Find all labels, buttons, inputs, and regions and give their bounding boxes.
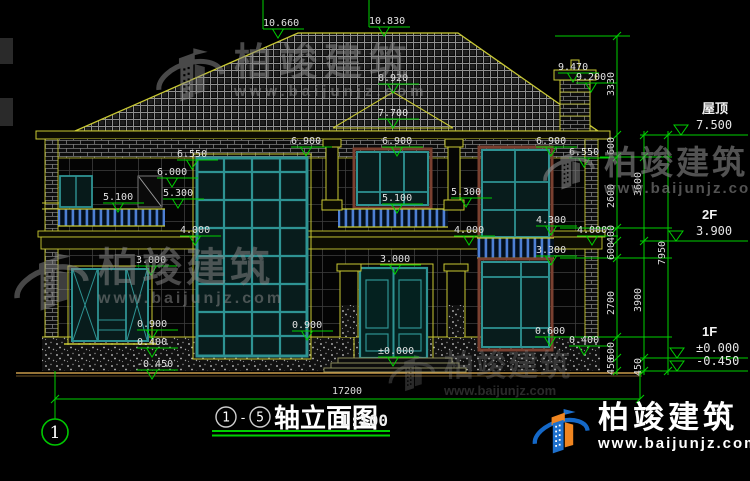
dimension-text: 2700 xyxy=(606,291,617,315)
title-block: 1 - 5 轴立面图 1:100 xyxy=(212,403,390,436)
drawing-scale: 1:100 xyxy=(340,411,388,430)
elevation-value: 10.660 xyxy=(263,18,299,29)
axis-bubble-label: 1 xyxy=(50,423,61,443)
dimension-text: 450 xyxy=(606,357,617,375)
level-value: ±0.000 xyxy=(696,341,739,355)
elevation-value: 4.000 xyxy=(180,225,210,236)
elevation-value: 5.300 xyxy=(451,187,481,198)
title-axis-start: 1 xyxy=(222,411,230,426)
dimension-text: 600 xyxy=(606,137,617,155)
title-axis-end: 5 xyxy=(256,411,264,426)
hip-roof xyxy=(75,33,598,131)
dimension-text: 2600 xyxy=(606,184,617,208)
elevation-value: 7.700 xyxy=(378,108,408,119)
elevation-value: 5.100 xyxy=(103,192,133,203)
elevation-value: 8.920 xyxy=(378,73,408,84)
elevation-value: 6.900 xyxy=(536,136,566,147)
dimension-text: 17200 xyxy=(332,386,362,397)
elevation-value: 5.100 xyxy=(382,193,412,204)
window-1f-left xyxy=(64,266,156,344)
elevation-value: 4.300 xyxy=(536,215,566,226)
dimension-text: 3600 xyxy=(633,172,644,196)
elevation-value: 6.000 xyxy=(157,167,187,178)
elevation-value: 6.550 xyxy=(569,147,599,158)
dimension-text: 7950 xyxy=(657,241,668,265)
entry-steps xyxy=(324,358,466,372)
window-2f-right xyxy=(477,147,554,258)
elevation-value: ±0.000 xyxy=(378,346,414,357)
elevation-value: 3.300 xyxy=(536,245,566,256)
dimension-text: 600 xyxy=(606,242,617,260)
elevation-value: 6.550 xyxy=(177,149,207,160)
elevation-value: 6.900 xyxy=(382,136,412,147)
level-value: 3.900 xyxy=(696,224,732,238)
ground-line xyxy=(16,373,642,376)
elevation-value: 9.200 xyxy=(576,72,606,83)
entry-door xyxy=(354,264,433,358)
dimension-text: 3900 xyxy=(633,288,644,312)
eave-fascia xyxy=(36,131,610,139)
cad-elevation-canvas: 屋顶7.5002F3.9001F±0.000-0.450 10.66010.83… xyxy=(0,0,750,481)
dimension-text: 3330 xyxy=(606,72,617,96)
level-name: 1F xyxy=(702,324,717,339)
balcony-2f-center xyxy=(338,209,448,227)
level-line: -0.450 xyxy=(640,354,748,371)
elevation-value: 3.000 xyxy=(136,255,166,266)
level-value: -0.450 xyxy=(696,354,739,368)
elevation-value: 0.900 xyxy=(137,319,167,330)
elevation-value: 10.830 xyxy=(369,16,405,27)
level-value: 7.500 xyxy=(696,118,732,132)
dimension-text: 450 xyxy=(633,358,644,376)
elevation-value: 3.000 xyxy=(380,254,410,265)
elevation-value: 0.400 xyxy=(569,335,599,346)
elevation-value: -0.450 xyxy=(137,359,173,370)
elevation-value: 5.300 xyxy=(163,188,193,199)
axis-bubble: 1 xyxy=(42,419,68,445)
elevation-value: 0.600 xyxy=(535,326,565,337)
level-name: 屋顶 xyxy=(702,101,728,116)
level-line: 屋顶7.500 xyxy=(640,101,748,135)
elevation-value: 4.000 xyxy=(454,225,484,236)
elevation-value: 0.400 xyxy=(137,337,167,348)
elevation-drawing: 屋顶7.5002F3.9001F±0.000-0.450 10.66010.83… xyxy=(0,0,750,481)
elevation-value: 6.900 xyxy=(291,136,321,147)
elevation-value: 4.000 xyxy=(577,225,607,236)
title-axis-separator: - xyxy=(239,411,247,426)
elevation-value: 0.900 xyxy=(292,320,322,331)
level-line: 1F±0.000 xyxy=(640,324,748,358)
dimension-text: 400 xyxy=(606,225,617,243)
level-line: 2F3.900 xyxy=(640,207,748,241)
level-name: 2F xyxy=(702,207,717,222)
